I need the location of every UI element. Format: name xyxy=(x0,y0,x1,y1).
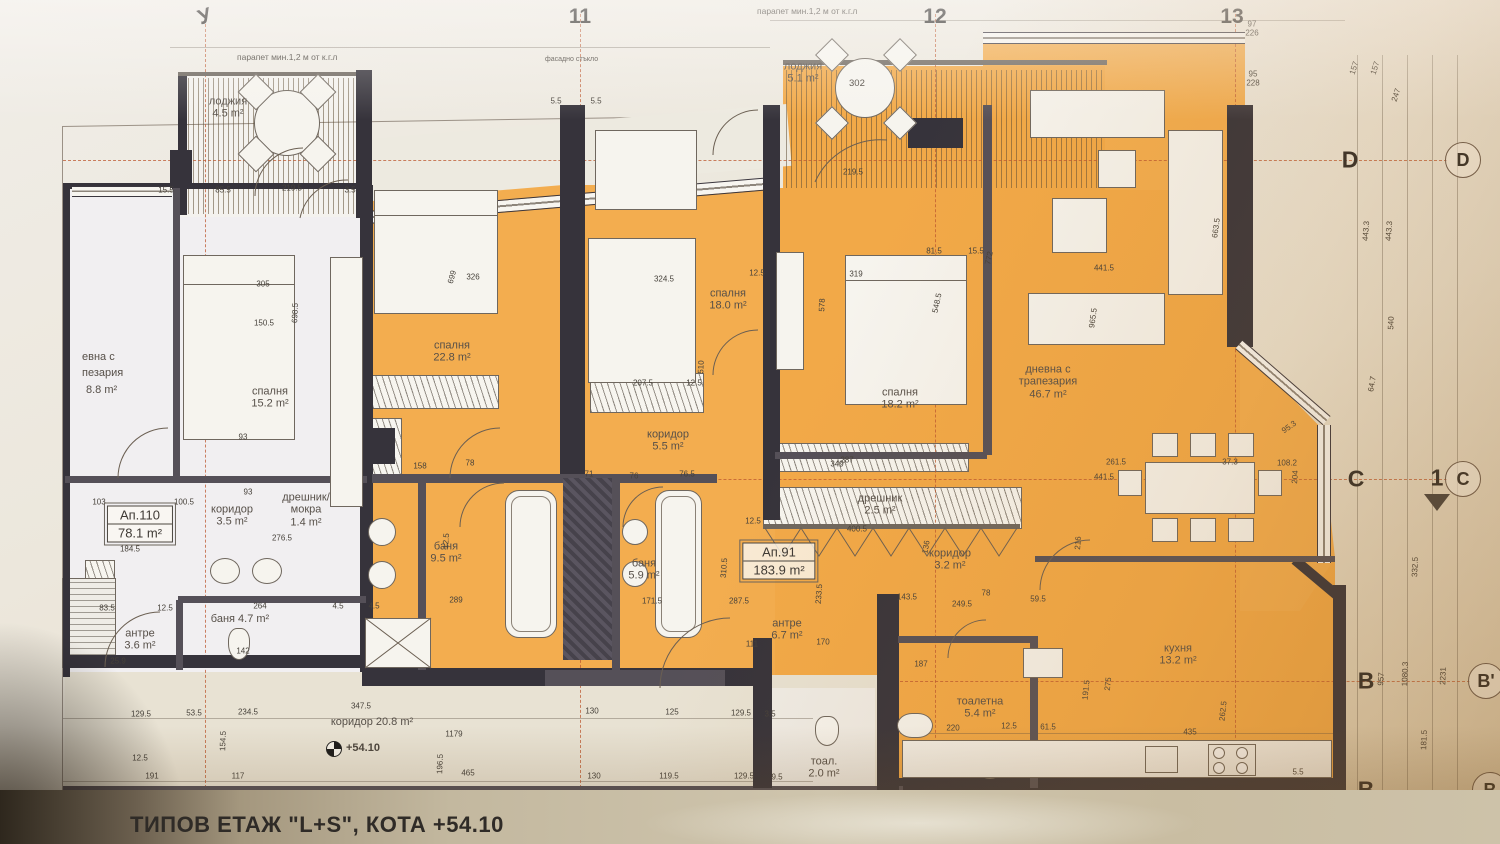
dimension-label: 347.5 xyxy=(351,702,371,711)
dimension-label: 264 xyxy=(253,602,266,611)
dimension-label: 663.5 xyxy=(1210,217,1222,238)
drawing-title: ТИПОВ ЕТАЖ "L+S", КОТА +54.10 xyxy=(130,812,504,838)
room-label: спалня15.2 m² xyxy=(251,386,288,411)
room-label-partial: 8.8 m² xyxy=(86,384,117,396)
dimension-label: 12.5 xyxy=(132,754,148,763)
dimension-label: 441.5 xyxy=(1094,473,1114,482)
dimension-label: 64.7 xyxy=(1366,376,1378,393)
dimension-label: 76.5 xyxy=(679,470,695,479)
grid-axis-letter: C xyxy=(1348,466,1365,493)
dimension-label: 129.5 xyxy=(734,772,754,781)
dimension-label: 15.5 xyxy=(968,247,984,256)
dimension-label: 262.5 xyxy=(1217,701,1228,722)
dimension-label: 289 xyxy=(449,596,462,605)
dimension-label: 226 xyxy=(1245,29,1258,38)
room-label: антре3.6 m² xyxy=(124,628,155,653)
dimension-label: 510 xyxy=(696,360,705,374)
room-label: дрешник2.5 m² xyxy=(858,493,903,518)
dimension-label: 3.5 xyxy=(764,710,775,719)
dimension-label: 219.5 xyxy=(843,168,863,177)
dimension-label: 100.5 xyxy=(174,498,194,507)
grid-axis-bubble: D xyxy=(1445,142,1481,178)
dimension-label: 5.5 xyxy=(590,97,601,106)
blueprint-photo: парапет мин.1,2 м от к.г.л парапет мин.1… xyxy=(0,0,1500,844)
dimension-label: 220 xyxy=(946,724,959,733)
dimension-label: 233.5 xyxy=(814,584,824,605)
dimension-label: 261.5 xyxy=(1106,458,1126,467)
dimension-label: 196.5 xyxy=(435,754,445,774)
dimension-label: 698.5 xyxy=(290,303,300,323)
dimension-label: 443.3 xyxy=(1384,221,1394,242)
dimension-label: 2231 xyxy=(1438,667,1448,685)
dimension-label: 443.3 xyxy=(1361,221,1371,242)
dimension-label: 305 xyxy=(256,280,269,289)
apartment-tag: Ап.91183.9 m² xyxy=(742,543,815,580)
dimension-label: 540 xyxy=(1386,316,1395,330)
dimension-label: 150.5 xyxy=(254,319,274,328)
dimension-label: 4.5 xyxy=(332,602,343,611)
dimension-label: 15.5 xyxy=(158,186,174,195)
dimension-label: 184.5 xyxy=(120,545,140,554)
dimension-label: 326 xyxy=(466,273,479,282)
dimension-label: 400.5 xyxy=(847,525,867,534)
dimension-label: 95.3 xyxy=(1280,419,1298,435)
dimension-label: 191 xyxy=(145,772,158,781)
dimension-label: 12.5 xyxy=(441,533,451,549)
dimension-label: 158 xyxy=(413,462,426,471)
dimension-label: 957 xyxy=(1376,672,1386,686)
room-label: тоал.2.0 m² xyxy=(808,756,839,781)
dimension-label: 5.5 xyxy=(1292,768,1303,777)
grid-axis-label: 11 xyxy=(569,5,591,29)
room-label-partial: евна с xyxy=(82,351,115,363)
dimension-label: 59.5 xyxy=(1030,595,1046,604)
dimension-label: 441.5 xyxy=(1094,264,1114,273)
grid-axis-label: 13 xyxy=(1220,5,1243,29)
room-label: баня 4.7 m² xyxy=(211,613,269,625)
dimension-label: 71 xyxy=(585,470,594,479)
grid-axis-label: 12 xyxy=(923,5,946,29)
dimension-label: 119.5 xyxy=(659,772,678,781)
dimension-label: 324.5 xyxy=(654,275,674,284)
dimension-label: 117 xyxy=(232,772,245,781)
dimension-label: 129.5 xyxy=(731,709,751,718)
dimension-label: 12.5 xyxy=(745,517,761,526)
dimension-label: 465 xyxy=(461,769,474,778)
grid-axis-bubble: B' xyxy=(1468,663,1500,699)
dimension-label: 319 xyxy=(849,270,862,279)
dimension-label: 965.5 xyxy=(1087,307,1099,328)
dimension-label: 142 xyxy=(236,647,249,656)
dimension-label: 25.9 xyxy=(110,657,126,666)
dimension-label: 81.5 xyxy=(926,247,942,256)
dimension-label: 93 xyxy=(244,488,253,497)
photo-glare xyxy=(640,792,1200,844)
dimension-label: 1179 xyxy=(445,730,462,739)
room-label: коридор5.5 m² xyxy=(647,429,689,454)
dimension-label: 103 xyxy=(92,498,105,507)
dimension-label: 216 xyxy=(1073,536,1083,550)
dimension-label: 9.5 xyxy=(771,773,782,782)
apartment-tag: Ап.11078.1 m² xyxy=(107,506,173,543)
dimension-label: 228 xyxy=(1246,79,1259,88)
section-mark-number: 1 xyxy=(1431,465,1444,492)
dimension-label: 4.5 xyxy=(368,602,379,611)
room-label: дрешник/мокра1.4 m² xyxy=(282,492,330,529)
dimension-label: 97 xyxy=(1248,20,1257,29)
labels-layer: лоджия4.5 m²лоджия5.1 m²спалня15.2 m²спа… xyxy=(0,0,1500,844)
dimension-label: 219.5 xyxy=(282,184,302,193)
dimension-label: 1080.3 xyxy=(1400,662,1410,687)
dimension-label: 171.5 xyxy=(642,597,662,606)
dimension-label: 93 xyxy=(239,433,248,442)
dimension-label: 53.5 xyxy=(186,709,202,718)
dimension-label: 247 xyxy=(1390,87,1403,102)
dimension-label: 108.2 xyxy=(1277,459,1297,468)
room-label: дневна страпезария46.7 m² xyxy=(1019,364,1078,401)
dimension-label: 191.5 xyxy=(1080,680,1091,701)
dimension-label: 125 xyxy=(665,708,678,717)
dimension-label: 287 xyxy=(840,456,853,465)
dimension-label: 548.5 xyxy=(931,292,944,313)
dimension-label: 83.5 xyxy=(99,604,115,613)
grid-axis-bubble: C xyxy=(1445,461,1481,497)
dimension-label: 129.5 xyxy=(131,710,151,719)
dimension-label: 78 xyxy=(466,459,475,468)
dimension-label: 12.5 xyxy=(749,269,765,278)
room-label: баня5.9 m² xyxy=(628,558,659,583)
dimension-label: 12.5 xyxy=(157,604,173,613)
dimension-label: 61.5 xyxy=(1040,723,1056,732)
room-label: спалня18.2 m² xyxy=(881,387,918,412)
dimension-label: 181.5 xyxy=(1419,730,1429,750)
dimension-label: 130 xyxy=(587,772,600,781)
dimension-label: 12.5 xyxy=(1001,722,1017,731)
dimension-label: 85.5 xyxy=(215,186,231,195)
room-label: спалня18.0 m² xyxy=(709,288,746,313)
dimension-label: 207.5 xyxy=(633,379,653,388)
dimension-label: 249.5 xyxy=(952,600,972,609)
dimension-label: 76 xyxy=(630,472,639,481)
photo-bottom-band: ТИПОВ ЕТАЖ "L+S", КОТА +54.10 xyxy=(0,790,1500,844)
dimension-label: 78 xyxy=(982,589,991,598)
dimension-label: 3.5 xyxy=(344,186,355,195)
dimension-label: 143.5 xyxy=(897,593,917,602)
dimension-label: 435 xyxy=(1183,728,1196,737)
dimension-label: 130 xyxy=(585,707,598,716)
dimension-label: 187 xyxy=(914,660,927,669)
dimension-label: 578 xyxy=(817,298,826,312)
dimension-label: 276.5 xyxy=(272,534,292,543)
dimension-label: 234.5 xyxy=(238,708,258,717)
dimension-label: 154.5 xyxy=(218,731,228,751)
room-label: антре6.7 m² xyxy=(771,618,802,643)
dimension-label: 12.5 xyxy=(686,379,702,388)
dimension-label: 111 xyxy=(746,640,758,649)
dimension-label: 95 xyxy=(1249,70,1258,79)
dimension-label: 5.5 xyxy=(550,97,561,106)
dimension-label: 157 xyxy=(1348,60,1361,75)
dimension-label: 157 xyxy=(1369,60,1382,75)
dimension-label: 287.5 xyxy=(729,597,749,606)
room-label: тоалетна5.4 m² xyxy=(957,696,1004,721)
dimension-label: 37.3 xyxy=(1222,458,1238,467)
room-label: кухня13.2 m² xyxy=(1159,643,1196,668)
room-label: коридор3.2 m² xyxy=(929,548,971,573)
room-label: коридор3.5 m² xyxy=(211,504,253,529)
room-label-partial: пезария xyxy=(82,367,123,379)
dimension-label: 204 xyxy=(1290,470,1300,484)
grid-axis-letter: B xyxy=(1358,668,1375,695)
dimension-label: 772 xyxy=(983,251,995,266)
dimension-label: 332.5 xyxy=(1410,557,1420,577)
grid-axis-label: У xyxy=(195,4,215,31)
dimension-label: 275 xyxy=(1103,677,1113,691)
room-label: лоджия4.5 m² xyxy=(209,96,247,121)
room-label: спалня22.8 m² xyxy=(433,340,470,365)
dimension-label: 699 xyxy=(446,269,458,284)
room-label: лоджия5.1 m² xyxy=(784,61,822,86)
grid-axis-letter: D xyxy=(1342,147,1359,174)
room-label: коридор 20.8 m² xyxy=(331,716,413,728)
dimension-label: 310.5 xyxy=(719,558,729,579)
dimension-label: 170 xyxy=(816,638,829,647)
